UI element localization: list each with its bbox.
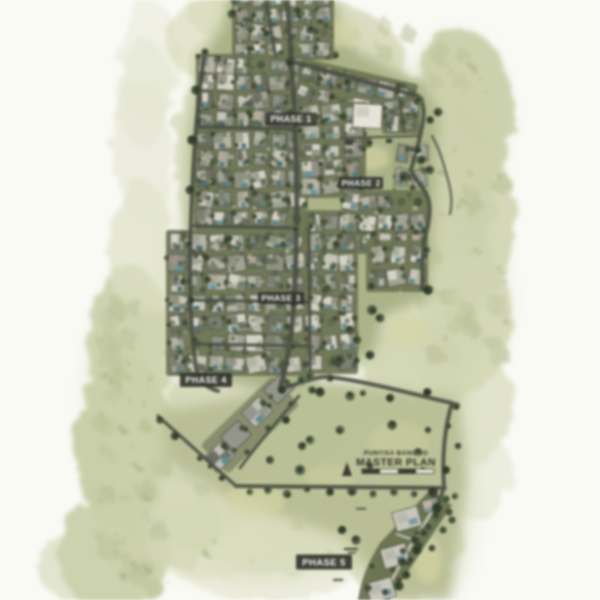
svg-text:PUNYISA BANG JO: PUNYISA BANG JO: [364, 450, 428, 457]
svg-text:PHASE 1: PHASE 1: [270, 114, 311, 124]
svg-text:PHASE 2: PHASE 2: [341, 178, 380, 188]
svg-text:MASTER PLAN: MASTER PLAN: [356, 458, 436, 469]
svg-text:PHASE 4: PHASE 4: [185, 375, 226, 385]
svg-text:PHASE 3: PHASE 3: [261, 293, 300, 303]
svg-text:PHASE 5: PHASE 5: [302, 557, 346, 568]
